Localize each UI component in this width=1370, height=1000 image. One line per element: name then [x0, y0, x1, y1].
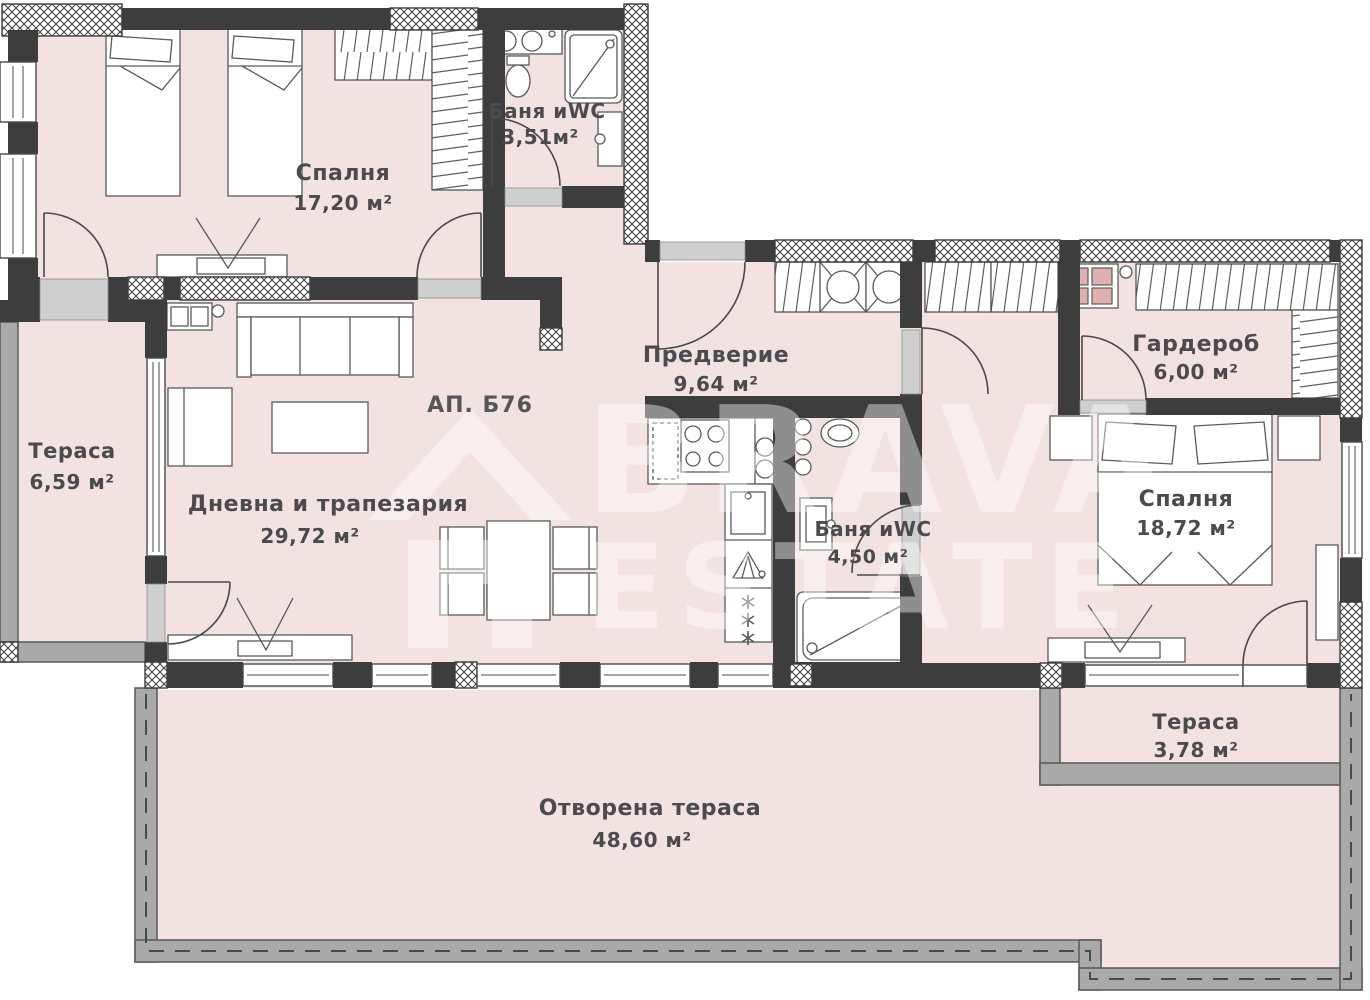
wall [1340, 558, 1362, 602]
closet-icon [775, 262, 820, 312]
hanging-rail-icon [1292, 310, 1338, 398]
parapet-corner-hatch [0, 642, 18, 662]
label-bath1-area: 3,51м² [501, 125, 578, 149]
wall-hatch [1340, 602, 1362, 688]
armchair-icon [168, 388, 232, 466]
wall [164, 277, 180, 300]
wall-hatch [1040, 663, 1062, 688]
window [1342, 442, 1362, 558]
wall-hatch [790, 664, 812, 686]
label-terrace-right-area: 3,78 м² [1154, 738, 1239, 762]
dresser-icon [1316, 545, 1338, 640]
wall-hatch [935, 240, 1060, 262]
wall [1060, 240, 1080, 262]
washing-machine-icon [820, 262, 866, 312]
wall [310, 277, 418, 300]
wall-hatch [624, 4, 648, 244]
label-bath2-name: Баня иWC [814, 517, 931, 541]
closet-icon [925, 262, 991, 312]
label-terrace-left-area: 6,59 м² [30, 470, 115, 494]
parapet-left-terrace-bottom [0, 642, 145, 662]
label-terrace-left-name: Тераса [28, 439, 115, 463]
shower-icon [565, 30, 622, 103]
window [1085, 665, 1243, 686]
wall [745, 240, 775, 262]
wall [8, 122, 38, 154]
single-bed-icon [106, 28, 180, 196]
wall [560, 662, 600, 688]
wall-hatch [1080, 240, 1330, 262]
window [600, 664, 690, 686]
label-bedroom2-name: Спалня [1139, 487, 1234, 512]
label-living-area: 29,72 м² [260, 524, 359, 548]
window [147, 358, 165, 556]
label-open-terrace-name: Отворена тераса [539, 796, 762, 821]
wall [432, 662, 455, 688]
wall [108, 277, 128, 300]
wall-hatch [1340, 240, 1362, 418]
wall-hatch [455, 662, 477, 688]
window [0, 154, 36, 258]
wall [562, 186, 624, 208]
wall [122, 8, 390, 30]
label-terrace-right-name: Тераса [1152, 710, 1239, 734]
window [372, 664, 432, 686]
parapet-open-right [1340, 688, 1362, 990]
wall [8, 30, 38, 62]
window [0, 62, 36, 122]
coffee-table-icon [272, 402, 368, 453]
label-hallway-name: Предверие [643, 343, 789, 368]
sofa-icon [237, 303, 413, 377]
closet-icon [432, 28, 483, 190]
window [718, 664, 773, 686]
window [477, 664, 560, 686]
label-bedroom1-area: 17,20 м² [293, 191, 392, 215]
label-hallway-area: 9,64 м² [674, 372, 759, 396]
wall [900, 262, 922, 328]
wall-hatch [145, 662, 167, 688]
wall [1307, 663, 1340, 688]
wall-hatch [390, 8, 478, 30]
wall [0, 300, 40, 322]
label-bath1-name: Баня иWC [488, 99, 605, 123]
wall [1340, 418, 1362, 442]
label-wardrobe-name: Гардероб [1132, 332, 1260, 357]
nightstand-icon [1278, 416, 1320, 460]
wall [645, 240, 660, 262]
label-bath2-area: 4,50 м² [828, 546, 909, 568]
wall [333, 662, 372, 688]
parapet-left-terrace-side [0, 322, 18, 642]
wall [1062, 663, 1085, 688]
label-living-name: Дневна и трапезария [188, 492, 468, 517]
wall [167, 662, 243, 688]
label-bedroom1-name: Спалня [296, 161, 391, 186]
wall [922, 663, 1040, 688]
wall [690, 662, 718, 688]
apartment-number: АП. Б76 [427, 393, 533, 418]
wall [108, 300, 167, 322]
label-wardrobe-area: 6,00 м² [1154, 360, 1239, 384]
label-open-terrace-area: 48,60 м² [592, 828, 691, 852]
wall-hatch [180, 277, 310, 300]
window [243, 664, 333, 686]
wall [483, 208, 505, 300]
hanging-rail-icon [1136, 264, 1338, 310]
wall [8, 277, 40, 300]
wall [145, 642, 167, 662]
label-bedroom2-area: 18,72 м² [1136, 516, 1235, 540]
wall [913, 240, 935, 262]
floorplan: BRAVA ESTATE Спалня 17,20 м² Баня иWC 3,… [0, 0, 1370, 1000]
wall-hatch [540, 328, 562, 350]
parapet-terrace-right-bottom [1040, 763, 1340, 785]
toilet-icon [506, 56, 530, 97]
wall-hatch [775, 240, 913, 262]
closet-icon [335, 28, 432, 80]
closet-icon [991, 262, 1058, 312]
wall [145, 556, 167, 584]
single-bed-icon [228, 28, 302, 196]
wall [145, 322, 167, 358]
wall-hatch [128, 277, 164, 300]
